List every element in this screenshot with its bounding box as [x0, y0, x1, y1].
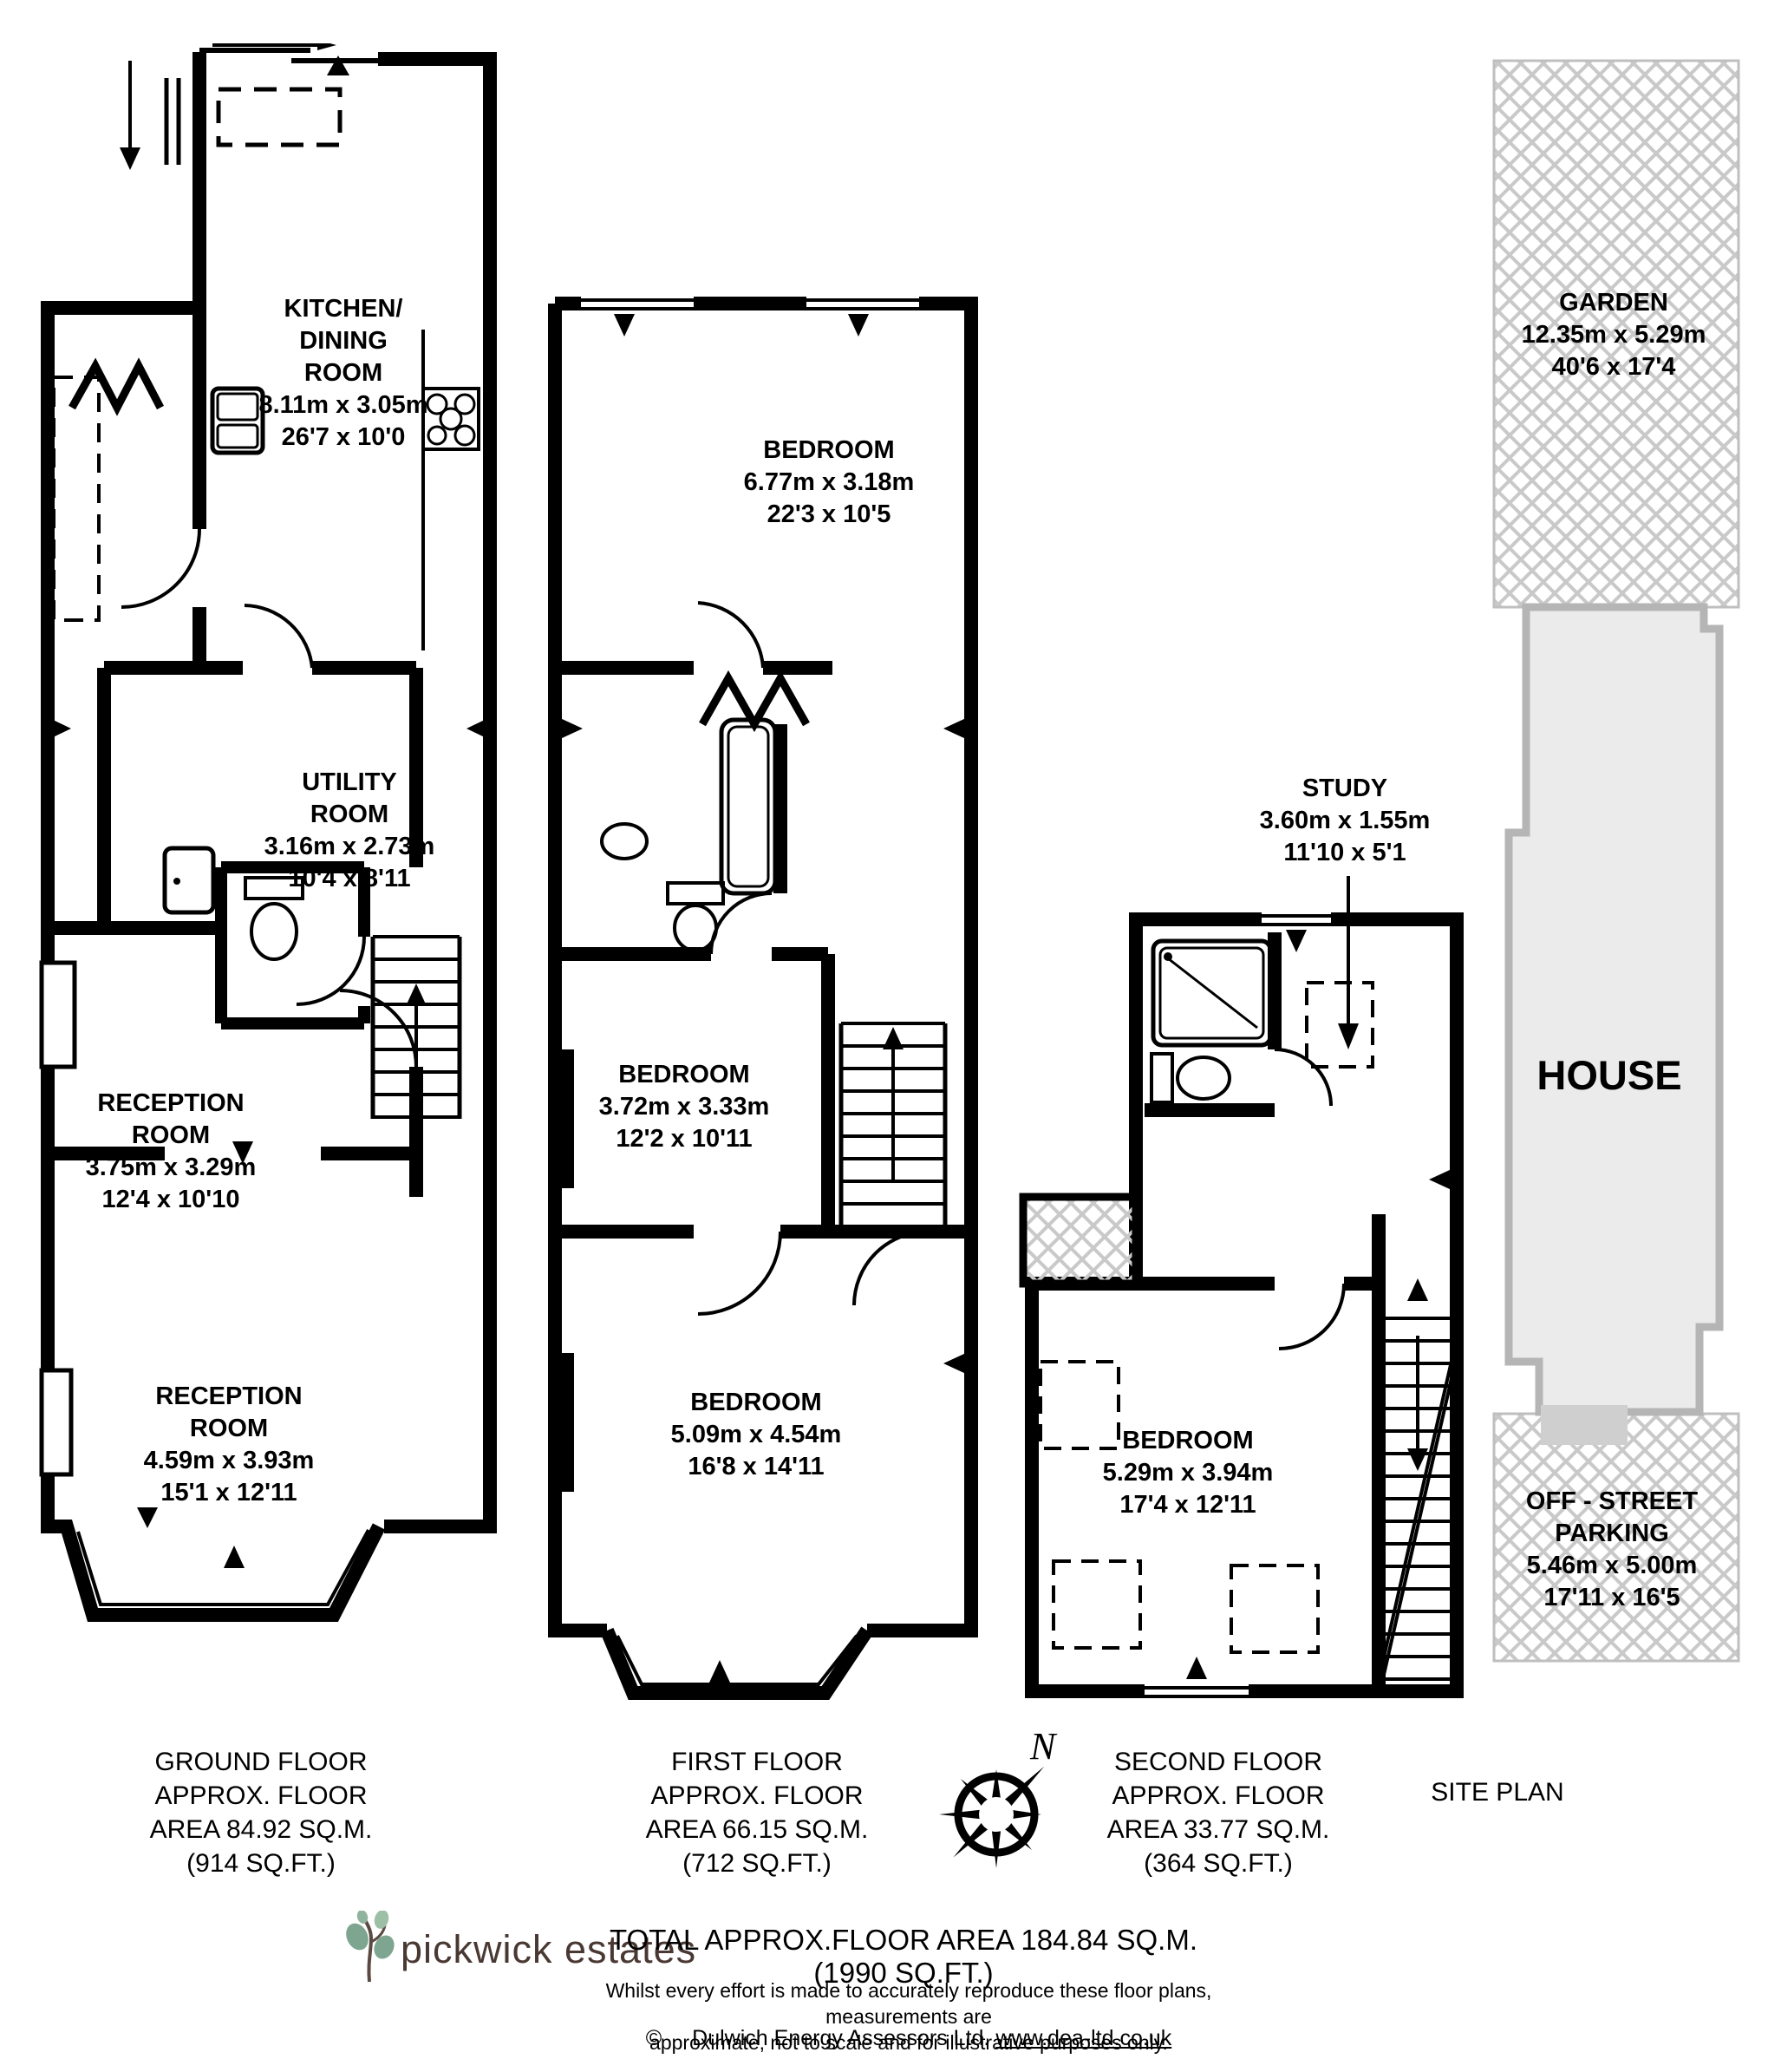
room-name: KITCHEN/ DINING ROOM — [226, 293, 460, 389]
room-name: BEDROOM — [1067, 1425, 1309, 1457]
room-metric: 4.59m x 3.93m — [108, 1445, 350, 1477]
room-metric: 3.16m x 2.73m — [224, 831, 475, 863]
room-imperial: 12'2 x 10'11 — [563, 1123, 806, 1155]
room-name: BEDROOM — [635, 1387, 877, 1419]
room-metric: 5.29m x 3.94m — [1067, 1457, 1309, 1489]
reception1-label: RECEPTION ROOM 3.75m x 3.29m 12'4 x 10'1… — [49, 1088, 292, 1216]
site-plan-caption: SITE PLAN — [1367, 1778, 1628, 1807]
room-imperial: 26'7 x 10'0 — [226, 422, 460, 454]
room-name: BEDROOM — [563, 1059, 806, 1091]
house-outline — [1509, 607, 1719, 1412]
utility-label: UTILITY ROOM 3.16m x 2.73m 10'4 x 8'11 — [224, 767, 475, 895]
copyright-symbol: © — [646, 2026, 662, 2050]
bedroom2-label: BEDROOM 3.72m x 3.33m 12'2 x 10'11 — [563, 1059, 806, 1155]
room-imperial: 12'4 x 10'10 — [49, 1184, 292, 1216]
room-name: UTILITY ROOM — [224, 767, 475, 831]
bedroom3-label: BEDROOM 5.09m x 4.54m 16'8 x 14'11 — [635, 1387, 877, 1483]
room-metric: 3.75m x 3.29m — [49, 1152, 292, 1184]
second-floor-plan — [1014, 763, 1474, 1709]
room-imperial: 17'4 x 12'11 — [1067, 1489, 1309, 1521]
room-imperial: 22'3 x 10'5 — [708, 499, 950, 531]
room-metric: 3.72m x 3.33m — [563, 1091, 806, 1123]
parking-label: OFF - STREET PARKING 5.46m x 5.00m 17'11… — [1491, 1486, 1733, 1614]
room-imperial: 10'4 x 8'11 — [224, 863, 475, 895]
area-name: OFF - STREET PARKING — [1491, 1486, 1733, 1550]
logo-leaf-icon — [345, 1911, 397, 1984]
room-metric: 3.60m x 1.55m — [1223, 805, 1466, 837]
area-name: GARDEN — [1492, 287, 1735, 319]
garden-label: GARDEN 12.35m x 5.29m 40'6 x 17'4 — [1492, 287, 1735, 383]
copyright-url-link[interactable]: www.dea-ltd.co.uk — [995, 2026, 1171, 2050]
second-bedroom-label: BEDROOM 5.29m x 3.94m 17'4 x 12'11 — [1067, 1425, 1309, 1521]
area-metric: 5.46m x 5.00m — [1491, 1550, 1733, 1582]
room-name: RECEPTION ROOM — [108, 1381, 350, 1445]
room-imperial: 15'1 x 12'11 — [108, 1477, 350, 1509]
compass-rose-icon — [932, 1696, 1080, 1869]
room-imperial: 11'10 x 5'1 — [1223, 837, 1466, 869]
copyright-owner: Dulwich Energy Assessors Ltd. — [692, 2026, 989, 2050]
room-name: RECEPTION ROOM — [49, 1088, 292, 1152]
area-metric: 12.35m x 5.29m — [1492, 319, 1735, 351]
study-label: STUDY 3.60m x 1.55m 11'10 x 5'1 — [1223, 773, 1466, 869]
second-floor-caption: SECOND FLOOR APPROX. FLOOR AREA 33.77 SQ… — [1088, 1745, 1348, 1880]
ground-floor-caption: GROUND FLOOR APPROX. FLOOR AREA 84.92 SQ… — [131, 1745, 391, 1880]
room-name: BEDROOM — [708, 435, 950, 467]
room-metric: 6.77m x 3.18m — [708, 467, 950, 499]
room-metric: 5.09m x 4.54m — [635, 1419, 877, 1451]
compass-north-label: N — [1030, 1724, 1055, 1768]
copyright-line: © Dulwich Energy Assessors Ltd. www.dea-… — [605, 2026, 1212, 2051]
floorplan-page: KITCHEN/ DINING ROOM 8.11m x 3.05m 26'7 … — [0, 0, 1768, 2072]
first-floor-caption: FIRST FLOOR APPROX. FLOOR AREA 66.15 SQ.… — [627, 1745, 887, 1880]
reception2-label: RECEPTION ROOM 4.59m x 3.93m 15'1 x 12'1… — [108, 1381, 350, 1509]
bedroom1-label: BEDROOM 6.77m x 3.18m 22'3 x 10'5 — [708, 435, 950, 531]
room-name: STUDY — [1223, 773, 1466, 805]
area-imperial: 40'6 x 17'4 — [1492, 351, 1735, 383]
house-label: HOUSE — [1488, 1051, 1731, 1099]
porch-tab — [1541, 1405, 1628, 1445]
area-imperial: 17'11 x 16'5 — [1491, 1582, 1733, 1614]
kitchen-label: KITCHEN/ DINING ROOM 8.11m x 3.05m 26'7 … — [226, 293, 460, 454]
room-imperial: 16'8 x 14'11 — [635, 1451, 877, 1483]
room-metric: 8.11m x 3.05m — [226, 389, 460, 422]
